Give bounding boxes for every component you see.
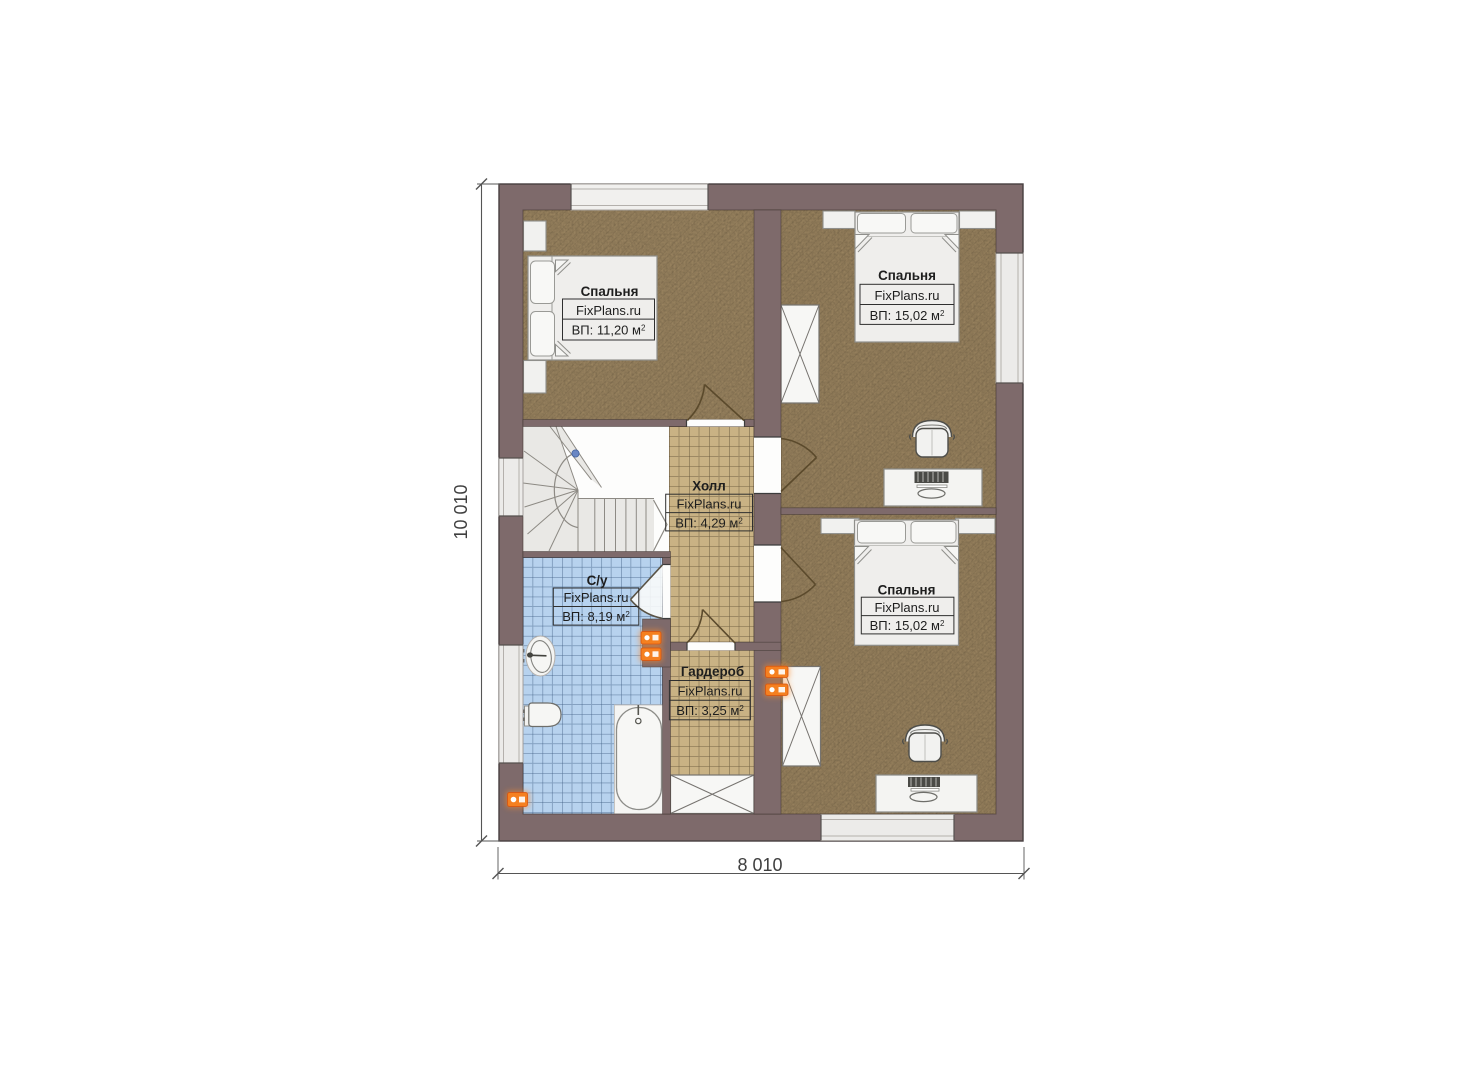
svg-text:С/у: С/у bbox=[587, 573, 608, 588]
svg-text:ВП: 8,19 м2: ВП: 8,19 м2 bbox=[562, 609, 630, 624]
svg-text:FixPlans.ru: FixPlans.ru bbox=[874, 288, 939, 303]
svg-text:ВП: 3,25 м2: ВП: 3,25 м2 bbox=[676, 703, 744, 718]
svg-text:FixPlans.ru: FixPlans.ru bbox=[563, 590, 628, 605]
svg-text:ВП: 15,02 м2: ВП: 15,02 м2 bbox=[870, 308, 945, 323]
svg-text:ВП: 4,29 м2: ВП: 4,29 м2 bbox=[675, 516, 743, 531]
svg-text:FixPlans.ru: FixPlans.ru bbox=[677, 684, 742, 699]
svg-text:Гардероб: Гардероб bbox=[681, 664, 744, 679]
svg-text:Спальня: Спальня bbox=[878, 583, 936, 598]
svg-text:FixPlans.ru: FixPlans.ru bbox=[874, 600, 939, 615]
svg-text:10 010: 10 010 bbox=[451, 484, 471, 539]
svg-text:8 010: 8 010 bbox=[737, 855, 782, 875]
svg-text:Спальня: Спальня bbox=[581, 284, 639, 299]
svg-text:Холл: Холл bbox=[692, 479, 726, 494]
svg-text:ВП: 11,20 м2: ВП: 11,20 м2 bbox=[572, 323, 646, 338]
svg-text:Спальня: Спальня bbox=[878, 268, 936, 283]
svg-text:FixPlans.ru: FixPlans.ru bbox=[676, 497, 741, 512]
svg-text:ВП: 15,02 м2: ВП: 15,02 м2 bbox=[870, 618, 945, 633]
svg-text:FixPlans.ru: FixPlans.ru bbox=[576, 303, 641, 318]
